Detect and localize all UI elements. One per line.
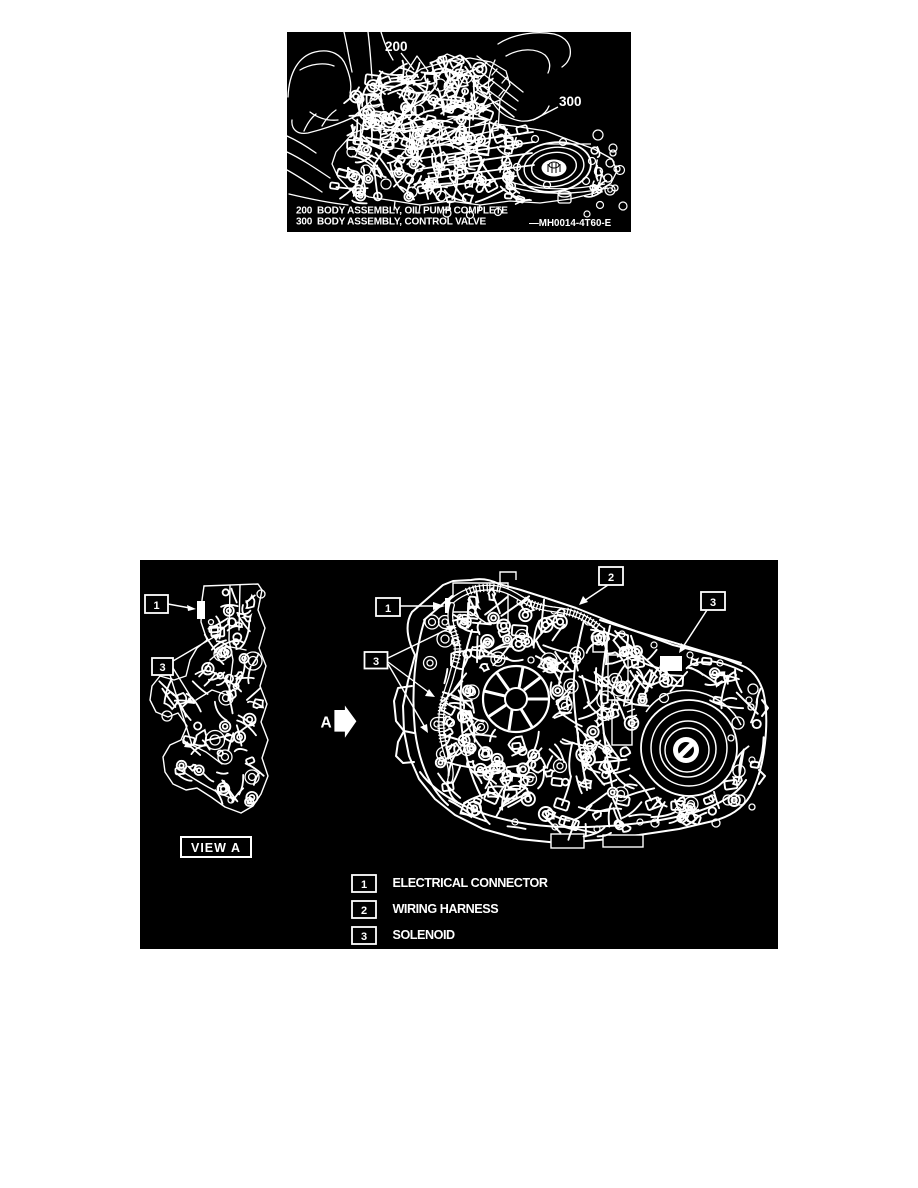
svg-text:—MH0014-4T60-E: —MH0014-4T60-E [529, 218, 612, 229]
svg-text:1: 1 [153, 600, 159, 612]
svg-text:SOLENOID: SOLENOID [393, 928, 456, 942]
svg-text:ELECTRICAL CONNECTOR: ELECTRICAL CONNECTOR [393, 876, 548, 890]
svg-text:2: 2 [361, 905, 367, 917]
svg-text:200: 200 [385, 39, 408, 54]
svg-text:300: 300 [559, 94, 582, 109]
svg-text:WIRING HARNESS: WIRING HARNESS [393, 902, 499, 916]
svg-text:VIEW A: VIEW A [191, 841, 241, 855]
svg-text:3: 3 [373, 656, 379, 668]
svg-text:1: 1 [385, 603, 391, 615]
svg-text:1: 1 [361, 879, 367, 891]
svg-text:3: 3 [361, 931, 367, 943]
svg-text:A: A [321, 715, 332, 732]
svg-text:200 BODY ASSEMBLY, OIL PUMP CO: 200 BODY ASSEMBLY, OIL PUMP COMPLETE [296, 206, 508, 217]
svg-text:3: 3 [710, 597, 716, 609]
svg-text:2: 2 [608, 572, 614, 584]
svg-text:3: 3 [159, 662, 165, 674]
svg-text:300 BODY ASSEMBLY, CONTROL VAL: 300 BODY ASSEMBLY, CONTROL VALVE [296, 217, 487, 228]
